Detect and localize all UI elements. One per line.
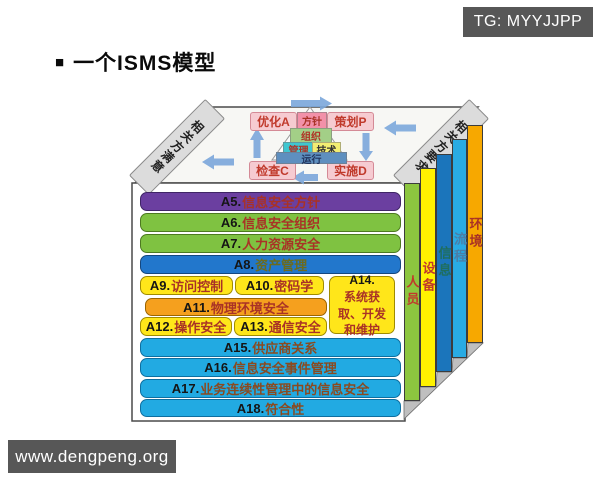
control-code: A17. xyxy=(172,381,199,396)
side-panel-environment: 环境 xyxy=(467,125,483,343)
control-label: 人力资源安全 xyxy=(242,234,320,253)
control-bar-a6: A6.信息安全组织 xyxy=(140,213,401,232)
control-bar-a17: A17.业务连续性管理中的信息安全 xyxy=(140,379,401,398)
control-bar-a18: A18.符合性 xyxy=(140,399,401,417)
control-label: 物理环境安全 xyxy=(211,298,289,317)
control-label: 信息安全方针 xyxy=(242,192,320,211)
control-label: 信息安全组织 xyxy=(242,213,320,232)
control-bar-a10: A10.密码学 xyxy=(235,276,324,295)
control-bar-a9: A9.访问控制 xyxy=(140,276,233,295)
control-code: A13. xyxy=(240,319,267,334)
control-code: A5. xyxy=(221,194,241,209)
control-label: 业务连续性管理中的信息安全 xyxy=(200,379,369,398)
control-code: A7. xyxy=(221,236,241,251)
control-label: 信息安全事件管理 xyxy=(233,358,337,377)
control-bar-a5: A5.信息安全方针 xyxy=(140,192,401,211)
control-code: A16. xyxy=(204,360,231,375)
control-label: 通信安全 xyxy=(269,317,321,336)
control-code: A11. xyxy=(183,300,210,315)
control-code: A9. xyxy=(150,278,170,293)
control-label: 密码学 xyxy=(274,276,313,295)
slide: TG: MYYJJPP www.dengpeng.org ■ 一个ISMS模型 … xyxy=(0,0,600,480)
control-code: A6. xyxy=(221,215,241,230)
control-code: A10. xyxy=(246,278,273,293)
control-label: 访问控制 xyxy=(171,276,223,295)
control-code: A18. xyxy=(237,401,264,416)
control-bar-a7: A7.人力资源安全 xyxy=(140,234,401,253)
pyramid-layer-policy: 方针 xyxy=(297,112,327,129)
control-code: A15. xyxy=(224,340,251,355)
control-bar-a11: A11.物理环境安全 xyxy=(145,298,327,316)
side-panel-label: 环境 xyxy=(466,217,485,251)
control-label: 符合性 xyxy=(265,399,304,418)
pyramid-layer-operation: 运行 xyxy=(276,152,347,164)
control-bar-a14: A14.系统获取、开发和维护 xyxy=(329,276,395,334)
control-code: A8. xyxy=(234,257,254,272)
control-code: A14. xyxy=(349,272,374,288)
control-label: 供应商关系 xyxy=(252,338,317,357)
control-bar-a13: A13.通信安全 xyxy=(234,317,327,336)
control-label: 系统获取、开发和维护 xyxy=(334,289,390,338)
control-code: A12. xyxy=(146,319,173,334)
control-label: 资产管理 xyxy=(255,255,307,274)
pdca-plan-label: 策划P xyxy=(327,112,374,131)
control-label: 操作安全 xyxy=(174,317,226,336)
control-bar-a12: A12.操作安全 xyxy=(140,317,232,336)
control-bar-a16: A16.信息安全事件管理 xyxy=(140,358,401,377)
control-bar-a15: A15.供应商关系 xyxy=(140,338,401,357)
